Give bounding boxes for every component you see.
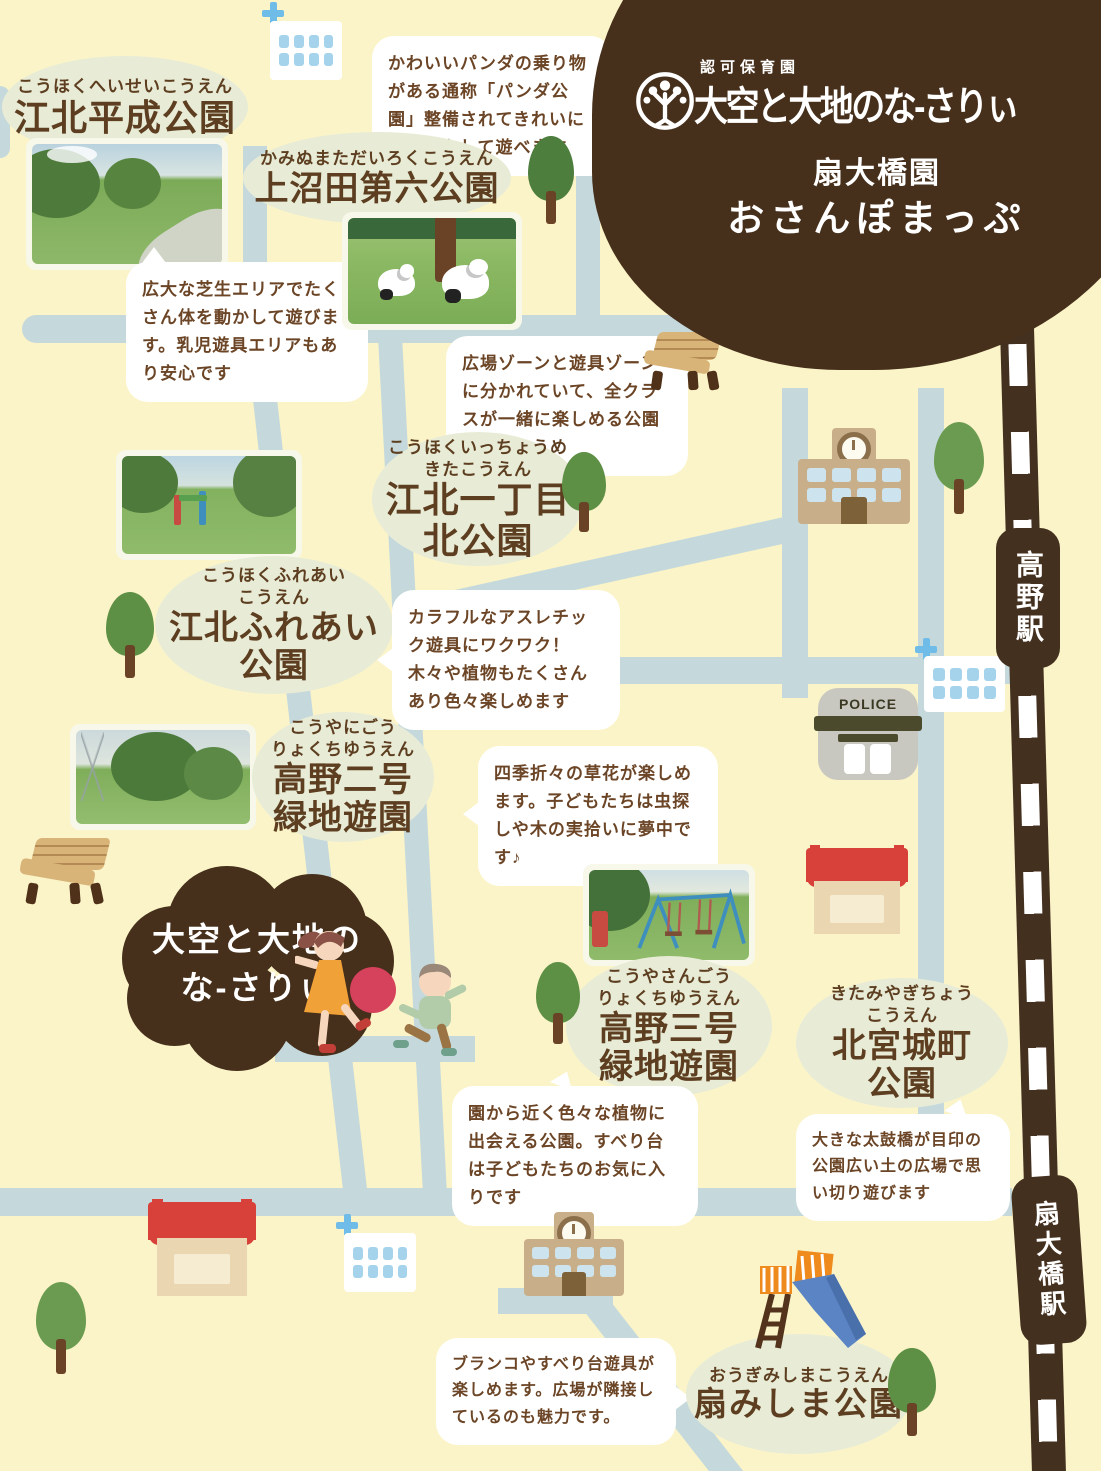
- bubble-tail: [142, 247, 166, 263]
- station-ogiohashi-label: 扇大橋駅: [1026, 1199, 1071, 1321]
- bubble-tail: [550, 1067, 578, 1091]
- park-furigana: こうやにごう りょくちゆうえん: [271, 717, 415, 761]
- park-name: 江北一丁目 北公園: [385, 480, 570, 561]
- park-name: 扇みしま公園: [694, 1386, 904, 1423]
- brand-title: 大空と大地のな-さりぃ: [694, 74, 1017, 132]
- school-icon: [524, 1212, 624, 1296]
- park-label-kaminumata: かみぬまただいろくこうえん 上沼田第六公園: [243, 132, 511, 224]
- park-name: 江北ふれあい 公園: [169, 609, 379, 685]
- park-desc-koya3: 園から近く色々な植物に出会える公園。すべり台は子どもたちのお気に入りです: [452, 1086, 698, 1226]
- station-takano: 高野駅: [996, 528, 1060, 668]
- panda-figure: [378, 269, 415, 297]
- park-furigana: こうほくいっちょうめ きたこうえん: [388, 437, 568, 481]
- police-label: POLICE: [818, 696, 918, 712]
- door: [562, 1272, 586, 1296]
- park-furigana: こうほくへいせいこうえん: [17, 76, 233, 98]
- police-box-icon: POLICE: [818, 688, 918, 780]
- hospital-icon: [262, 2, 344, 80]
- park-furigana: かみぬまただいろくこうえん: [260, 148, 494, 170]
- park-name: 高野二号 緑地遊園: [273, 761, 413, 837]
- store-icon: [806, 842, 908, 934]
- park-label-kitamiyagi: きたみやぎちょう こうえん 北宮城町 公園: [796, 978, 1008, 1108]
- header-blob: 認可保育園 大空と大地のな-さりぃ 扇大橋園 おさんぽまっぷ: [592, 0, 1101, 370]
- park-name: 上沼田第六公園: [255, 170, 500, 208]
- store-icon: [148, 1196, 256, 1296]
- bubble-tail: [377, 648, 393, 672]
- red-ball: [350, 967, 396, 1013]
- park-name: 北宮城町 公園: [832, 1027, 972, 1103]
- park-furigana: きたみやぎちょう こうえん: [830, 983, 974, 1027]
- slide-icon: [732, 1248, 872, 1350]
- tree-icon: [36, 1282, 86, 1374]
- map-title: おさんぽまっぷ: [652, 188, 1101, 242]
- bubble-tail: [463, 802, 479, 826]
- tree-icon: [536, 962, 580, 1044]
- park-furigana: こうやさんごう りょくちゆうえん: [597, 966, 741, 1010]
- panda-figure: [442, 265, 489, 299]
- station-takano-label: 高野駅: [1008, 550, 1048, 646]
- park-label-koya3: こうやさんごう りょくちゆうえん 高野三号 緑地遊園: [566, 956, 772, 1096]
- park-photo-kohoku-fureai: [116, 450, 302, 560]
- park-desc-kohoku-heisei: 広大な芝生エリアでたくさん体を動かして遊びます。乳児遊具エリアもあり安心です: [126, 262, 368, 402]
- hospital-icon: [915, 638, 1007, 712]
- tree-icon: [562, 452, 606, 532]
- park-furigana: おうぎみしまこうえん: [709, 1365, 889, 1387]
- park-photo-kaminumata: [342, 212, 522, 330]
- hospital-icon: [336, 1214, 418, 1292]
- door: [870, 744, 891, 774]
- park-label-kohoku-fureai: こうほくふれあい こうえん 江北ふれあい 公園: [155, 556, 393, 694]
- running-children-illustration: [295, 920, 485, 1085]
- park-photo-koya3: [583, 864, 755, 966]
- station-ogiohashi: 扇大橋駅: [1010, 1174, 1088, 1346]
- tree-icon: [934, 422, 984, 514]
- park-name: 江北平成公園: [14, 98, 236, 138]
- park-desc-kitamiyagi: 大きな太鼓橋が目印の公園広い土の広場で思い切り遊びます: [796, 1114, 1010, 1221]
- door: [844, 744, 865, 774]
- park-desc-ogimishima: ブランコやすべり台遊具が楽しめます。広場が隣接しているのも魅力です。: [436, 1338, 676, 1445]
- park-label-koya2: こうやにごう りょくちゆうえん 高野二号 緑地遊園: [252, 712, 434, 842]
- park-desc-kohoku-fureai: カラフルなアスレチック遊具にワクワク！木々や植物もたくさんあり色々楽しめます: [392, 590, 620, 730]
- school-icon: [798, 428, 910, 524]
- park-photo-koya2: [70, 724, 256, 830]
- park-label-kohoku-itchome: こうほくいっちょうめ きたこうえん 江北一丁目 北公園: [372, 432, 584, 566]
- tree-icon: [888, 1348, 936, 1436]
- door: [841, 497, 868, 524]
- nursery-logo-icon: [634, 70, 696, 132]
- park-photo-kohoku-heisei: [26, 138, 228, 270]
- park-label-ogimishima: おうぎみしまこうえん 扇みしま公園: [686, 1334, 912, 1454]
- walk-map: 高野駅 扇大橋駅 認可保育園 大空と大地のな-さりぃ 扇大橋園 おさんぽまっぷ …: [0, 0, 1101, 1471]
- branch-name: 扇大橋園: [692, 148, 1062, 192]
- tree-icon: [528, 136, 574, 224]
- park-furigana: こうほくふれあい こうえん: [202, 565, 346, 609]
- tree-icon: [106, 592, 154, 678]
- bench-icon: [18, 838, 110, 904]
- park-name: 高野三号 緑地遊園: [599, 1010, 739, 1086]
